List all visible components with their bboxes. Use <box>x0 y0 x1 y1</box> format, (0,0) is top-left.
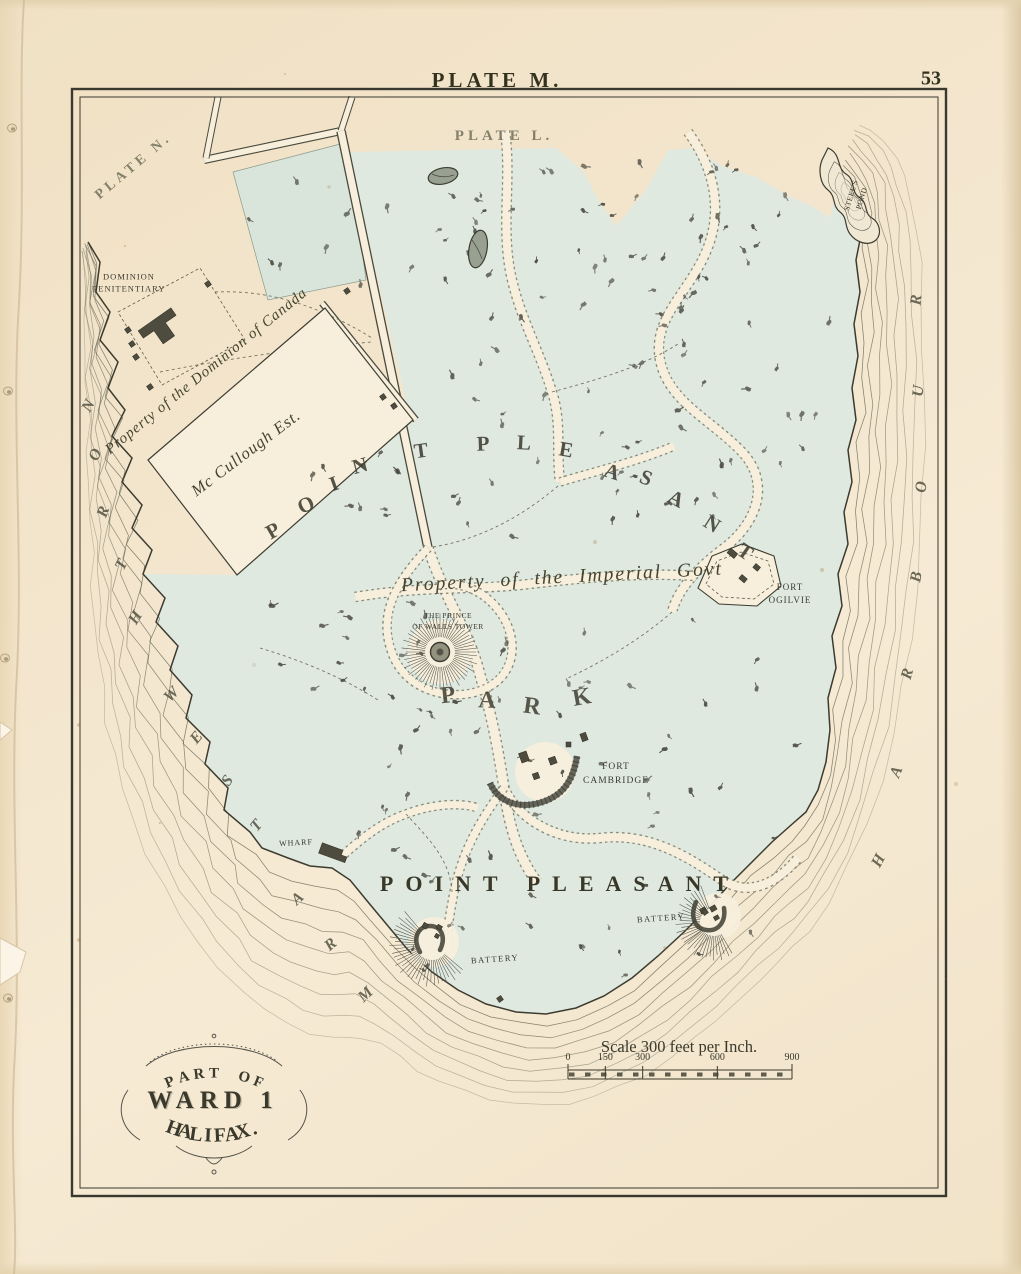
prince-label-line1: THE PRINCE <box>412 611 484 622</box>
fort-ogilvie-label: FORT OGILVIE <box>769 581 812 607</box>
small-building <box>129 341 136 348</box>
fort-ogilvie-label-line1: FORT <box>769 581 812 594</box>
cartouche-part-of: R <box>192 1066 205 1084</box>
fort-cambridge-label-line2: CAMBRIDGE <box>583 775 649 789</box>
shore-letter-harbour: O <box>913 481 932 494</box>
small-building <box>125 327 132 334</box>
spread-letter-point-pleasant: L <box>516 430 531 456</box>
scale-tick-label: 900 <box>785 1052 800 1063</box>
fort-cambridge-label-line1: FORT <box>583 761 649 775</box>
prince-of-wales-tower <box>431 643 450 662</box>
page-title: PLATE M. <box>432 65 563 95</box>
spread-letter-park: P <box>439 682 456 710</box>
penitentiary-building <box>138 308 185 351</box>
plate-l-label: PLATE L. <box>455 126 553 148</box>
scale-title: Scale 300 feet per Inch. <box>601 1035 757 1059</box>
penitentiary-label-line1: DOMINION <box>93 271 166 283</box>
spread-letter-park: K <box>570 683 593 713</box>
page-deckle-and-holes <box>0 0 26 1274</box>
tree-icon <box>609 212 616 217</box>
small-building <box>147 384 154 391</box>
penitentiary-label-line2: PENITENTIARY <box>93 283 166 295</box>
fort-cambridge-label: FORT CAMBRIDGE <box>583 761 649 789</box>
small-building <box>205 281 212 288</box>
wharf-label: WHARF <box>279 836 313 849</box>
fort-ogilvie-label-line2: OGILVIE <box>769 594 812 607</box>
page-number: 53 <box>921 65 941 94</box>
tree-icon <box>696 950 704 957</box>
penitentiary-label: DOMINION PENITENTIARY <box>93 271 166 296</box>
spread-letter-park: A <box>478 687 496 715</box>
prince-of-wales-tower-label: THE PRINCE OF WALES TOWER <box>412 611 484 633</box>
point-pleasant-title: POINT PLEASANT <box>380 868 740 900</box>
shore-letter-harbour: R <box>908 294 927 306</box>
shore-letter-harbour: U <box>910 384 929 397</box>
tree-icon <box>724 160 731 167</box>
scale-tick-label: 0 <box>566 1052 571 1063</box>
small-building <box>133 354 140 361</box>
small-building <box>344 288 351 295</box>
tree-icon <box>749 929 754 936</box>
cartouche-part-of: T <box>209 1066 219 1083</box>
spread-letter-point-pleasant: P <box>476 431 490 456</box>
spread-letter-park: R <box>522 692 543 721</box>
cartouche-halifax: I <box>204 1124 213 1147</box>
fort-cambridge-clearing <box>515 742 575 802</box>
atlas-page: 0150300600900 PLATE M. 53 PLA <box>0 0 1021 1274</box>
tree-icon <box>637 159 644 168</box>
prince-label-line2: OF WALES TOWER <box>412 622 484 633</box>
